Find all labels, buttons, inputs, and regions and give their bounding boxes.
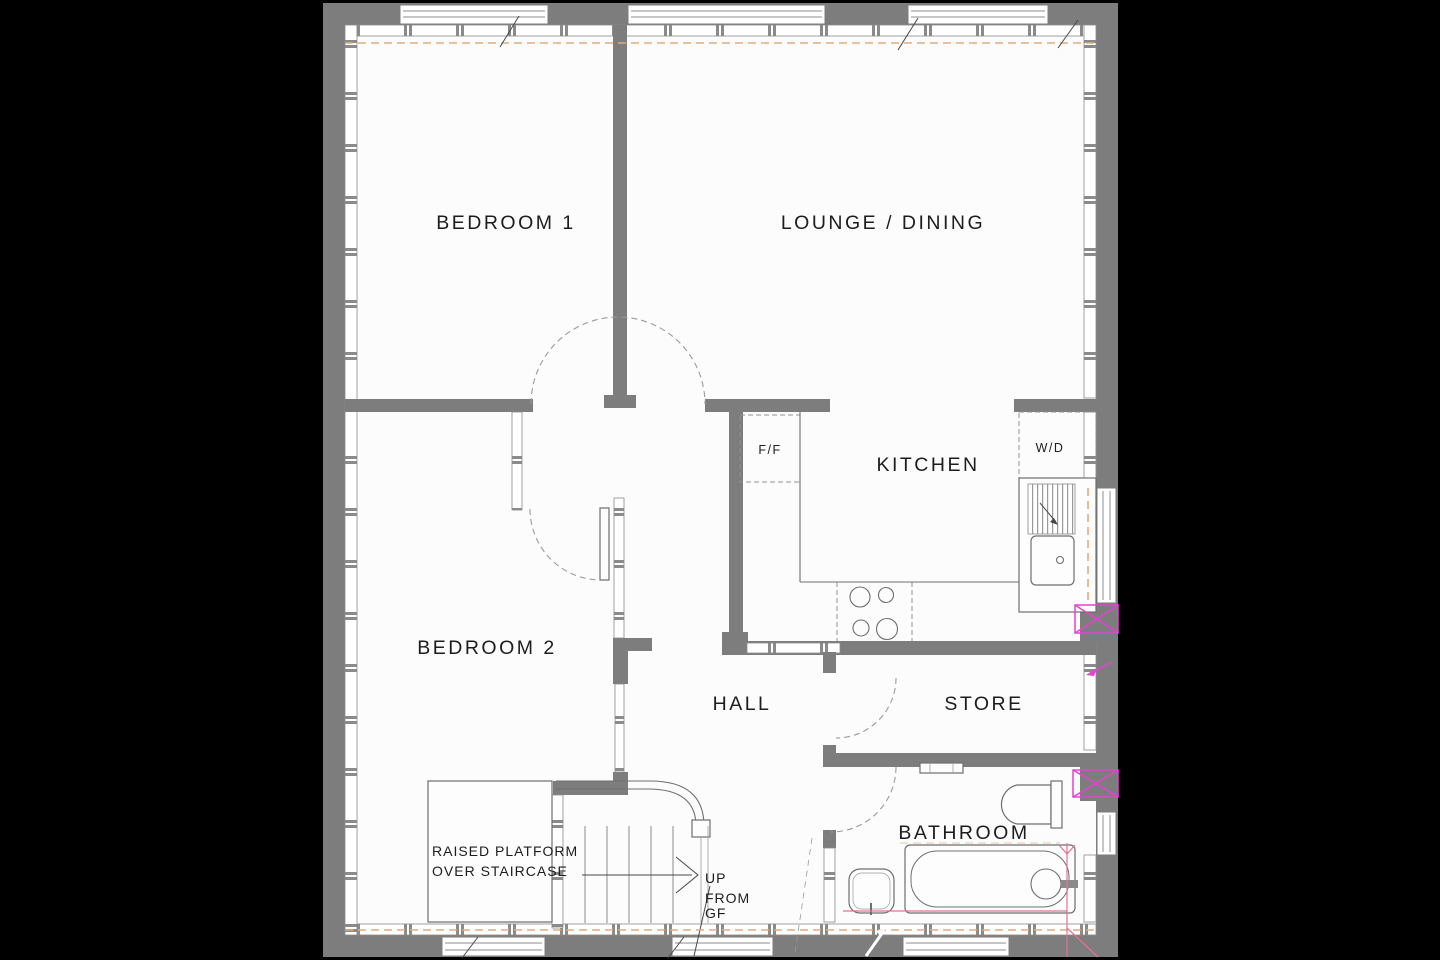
room-label-store: STORE xyxy=(944,693,1023,715)
glazed-panel-kitchen-store xyxy=(747,643,840,653)
radiator-icon xyxy=(920,763,963,773)
wall-bedroom1-bedroom2 xyxy=(345,399,533,412)
wall-bedroom2-stair xyxy=(553,781,628,795)
note-stair-line3: GF xyxy=(705,905,726,921)
wall-bedroom1-lounge xyxy=(613,25,627,395)
sink-bowl-icon xyxy=(1031,536,1074,585)
room-label-bedroom2: BEDROOM 2 xyxy=(417,637,557,659)
room-label-hall: HALL xyxy=(713,693,772,715)
room-label-bedroom1: BEDROOM 1 xyxy=(436,212,576,234)
drainer-icon xyxy=(1028,484,1075,534)
window-lounge-left xyxy=(628,5,825,24)
basin-icon xyxy=(849,869,894,915)
note-raised-platform-line2: OVER STAIRCASE xyxy=(432,863,568,879)
window-bedroom2 xyxy=(442,937,545,956)
wall-lounge-kitchen-right xyxy=(1014,399,1096,412)
lining-top xyxy=(357,25,1096,36)
room-label-lounge-dining: LOUNGE / DINING xyxy=(781,212,985,234)
stud-bathroom-left xyxy=(824,848,835,922)
window-bathroom-right xyxy=(1097,812,1116,855)
bath-tap-icon xyxy=(1061,880,1078,888)
lining-right-store xyxy=(1084,645,1096,750)
wall-store-door-head xyxy=(823,652,836,673)
window-bathroom-bottom xyxy=(903,937,1009,956)
stud-landing-hall xyxy=(614,498,624,638)
label-washer-dryer: W/D xyxy=(1036,441,1065,455)
floor-plan-drawing: BEDROOM 1 LOUNGE / DINING KITCHEN BEDROO… xyxy=(0,0,1440,960)
note-raised-platform-line1: RAISED PLATFORM xyxy=(432,843,578,859)
wall-hall-stub xyxy=(613,638,652,651)
wall-hall-kitchen xyxy=(729,412,743,652)
wall-lounge-kitchen-left xyxy=(705,399,830,412)
room-label-kitchen: KITCHEN xyxy=(876,454,979,476)
stud-hall-stair xyxy=(615,684,624,772)
lining-right-kitchen xyxy=(1084,412,1096,488)
toilet-icon xyxy=(1001,781,1062,828)
wall-cap-landing xyxy=(604,395,636,408)
stud-stair-left xyxy=(552,795,563,928)
window-bedroom1 xyxy=(400,5,548,24)
floor-plan-page: BEDROOM 1 LOUNGE / DINING KITCHEN BEDROO… xyxy=(0,0,1440,960)
room-label-bathroom: BATHROOM xyxy=(898,822,1029,844)
window-lounge-right xyxy=(908,5,1048,24)
lining-left xyxy=(345,25,357,935)
note-stair-line2: FROM xyxy=(705,890,750,906)
newel-post xyxy=(692,820,710,837)
window-kitchen xyxy=(1097,488,1116,603)
wall-cap-bathroom xyxy=(823,830,836,848)
note-stair-line1: UP xyxy=(705,870,726,886)
stud-bedroom2-landing xyxy=(512,412,522,510)
label-fridge-freezer: F/F xyxy=(758,443,781,457)
door-leaf-bedroom2 xyxy=(600,508,609,580)
lining-right-lounge xyxy=(1084,25,1096,398)
lining-right-bathroom xyxy=(1084,855,1096,922)
bathtub-icon xyxy=(905,845,1078,913)
outer-wall-left xyxy=(323,3,345,957)
window-stairwell xyxy=(672,937,773,956)
